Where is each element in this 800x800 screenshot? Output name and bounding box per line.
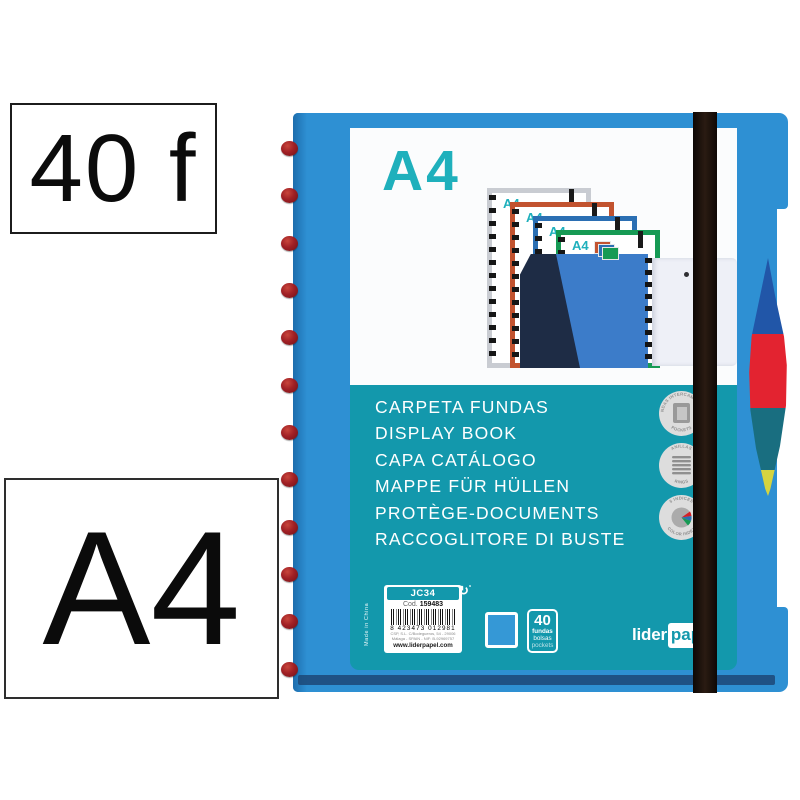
capacity-box: 40 fundas bolsas pockets [527, 609, 558, 653]
title-line-pt: CAPA CATÁLOGO [375, 447, 625, 473]
title-line-en: DISPLAY BOOK [375, 420, 625, 446]
spiral-binding-icon [512, 209, 519, 361]
tab-red [748, 334, 788, 408]
color-index-icon [672, 508, 692, 528]
sheet-count-annotation: 40 f [10, 103, 217, 234]
sheet-count-label: 40 f [29, 114, 197, 224]
capacity-unit-es: fundas [529, 628, 556, 635]
color-swatch-blue [485, 612, 518, 648]
spiral-dot [281, 425, 298, 440]
made-in-label: Made in China [364, 586, 370, 646]
spiral-dot [281, 472, 298, 487]
brand-logo-lider: lider [632, 625, 667, 645]
spiral-dot [281, 378, 298, 393]
product-code-line: Cod. 159483 [384, 601, 462, 608]
title-line-it: RACCOGLITORE DI BUSTE [375, 526, 625, 552]
model-code: JC34 [387, 587, 459, 600]
barcode [391, 609, 455, 625]
format-heading: A4 [382, 138, 461, 204]
product-code: 159483 [420, 601, 443, 608]
manufacturer-address-2: Málaga - SPAIN - NIF: B-92969757 [384, 637, 462, 642]
mini-folder-green [602, 247, 619, 260]
title-line-es: CARPETA FUNDAS [375, 394, 625, 420]
capacity-unit-en: pockets [529, 642, 556, 649]
website-url: www.liderpapel.com [384, 642, 462, 649]
product-title-multilingual: CARPETA FUNDAS DISPLAY BOOK CAPA CATÁLOG… [375, 394, 625, 552]
spiral-dot [281, 520, 298, 535]
spiral-binding-icon [645, 258, 652, 366]
title-line-de: MAPPE FÜR HÜLLEN [375, 473, 625, 499]
snap-button [684, 272, 689, 277]
spiral-dot [281, 330, 298, 345]
spiral-dot [281, 236, 298, 251]
format-annotation-label: A4 [42, 496, 240, 682]
elastic-band [693, 112, 717, 693]
title-line-fr: PROTÈGE-DOCUMENTS [375, 500, 625, 526]
spiral-dot [281, 283, 298, 298]
spiral-dot [281, 141, 298, 156]
spiral-binding-icon [489, 195, 496, 361]
recycle-icon: ↻° [458, 583, 471, 599]
product-info-label: JC34 Cod. 159483 8 423473 012981 CSP, S.… [384, 585, 462, 653]
folder-cover-edge-bottom [777, 607, 788, 692]
spiral-dot [281, 567, 298, 582]
elastic-clip-icon [638, 231, 643, 248]
cascade-format-label: A4 [572, 238, 589, 253]
spiral-dot [281, 188, 298, 203]
capacity-unit-pt: bolsas [529, 635, 556, 642]
spiral-dot [281, 614, 298, 629]
format-annotation: A4 [4, 478, 279, 699]
spiral-dot [281, 662, 298, 677]
product-photo: 40 f A4 A4 A4 A4 A4 [0, 0, 800, 800]
capacity-number: 40 [529, 613, 556, 628]
folder-cover-edge-top [777, 113, 788, 209]
